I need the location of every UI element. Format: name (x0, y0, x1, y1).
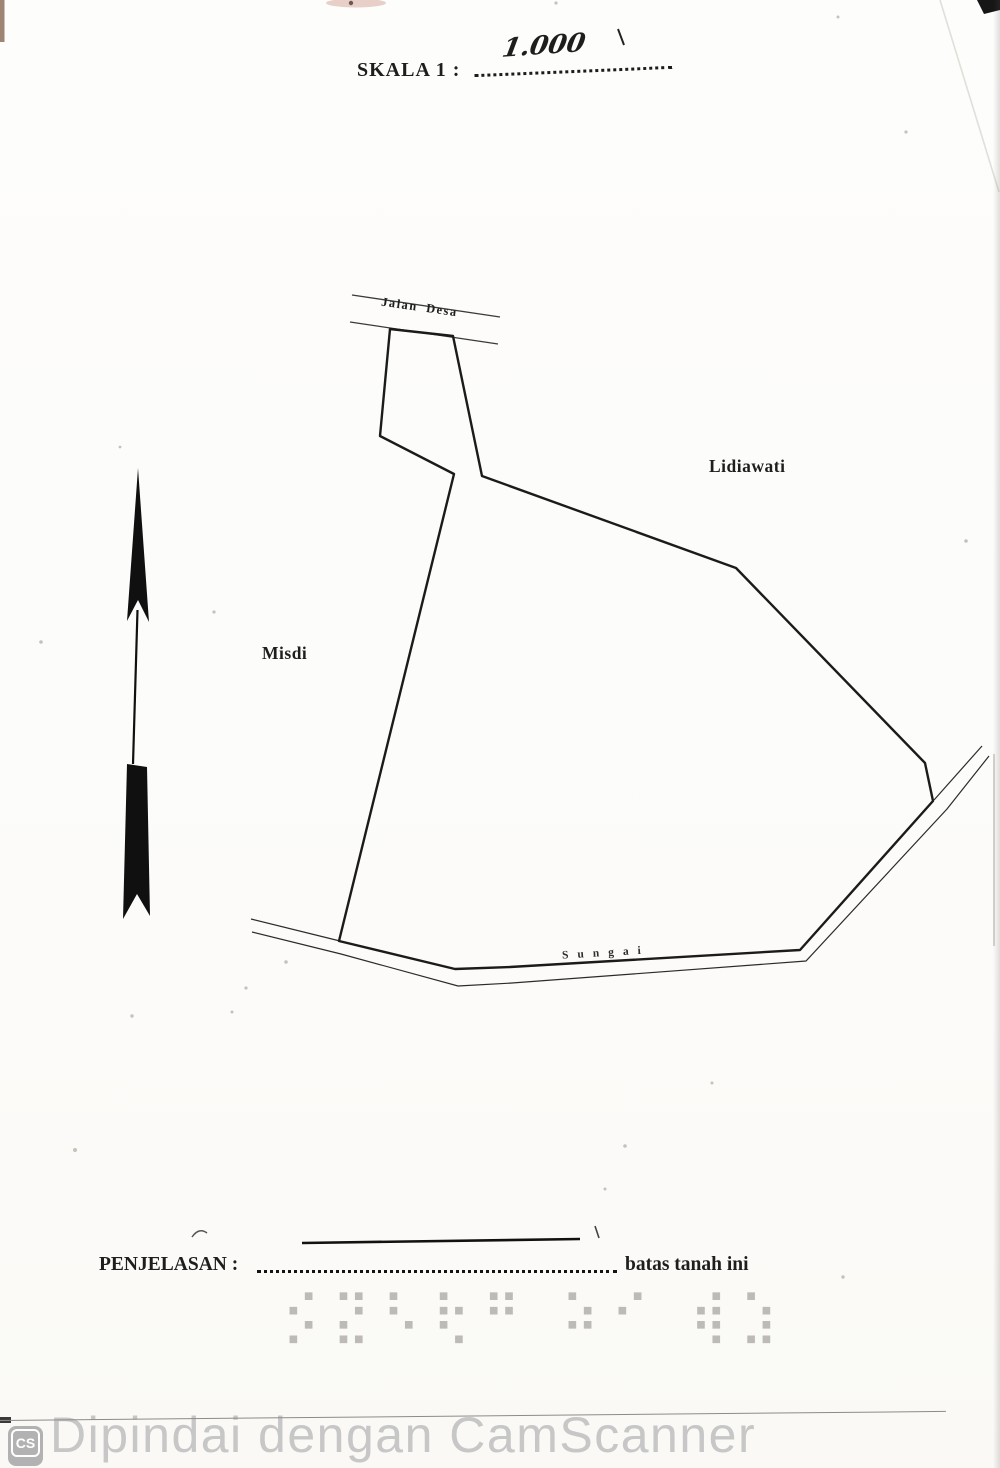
paper-edge-mark (0, 0, 5, 42)
legend-text: batas tanah ini (625, 1254, 749, 1276)
legend-title: PENJELASAN : (99, 1254, 238, 1276)
neighbor-label-west: Misdi (262, 643, 307, 664)
map-sketch (0, 0, 1000, 1468)
camscanner-logo: CS (8, 1426, 43, 1466)
pen-tick-mark (618, 29, 624, 45)
legend-dotted-line (257, 1254, 617, 1273)
parcel-boundary (339, 329, 933, 969)
scale-label: SKALA 1 : (357, 59, 460, 82)
scanned-document-page: SKALA 1 : 1.000 Jalan Desa Lidiawati Mis… (0, 0, 1000, 1468)
pen-tick-mark (595, 1226, 599, 1238)
neighbor-label-east: Lidiawati (709, 456, 785, 477)
pen-curl-mark (192, 1231, 207, 1237)
paper-crease-line (940, 0, 999, 192)
scale-value-handwritten: 1.000 (500, 28, 588, 64)
faint-stamp-marks: ⡪⣝⠣⢗⠛ ⠵⠊ ⢾⣱ (282, 1286, 790, 1346)
camscanner-logo-text: CS (11, 1429, 40, 1457)
paper-speck (349, 1, 353, 5)
paper-right-edge-shade (993, 0, 1000, 1468)
scan-specks (39, 1, 968, 1278)
legend-sample-line (302, 1239, 580, 1243)
paper-smudge (326, 0, 386, 8)
north-arrow-icon (123, 468, 150, 919)
